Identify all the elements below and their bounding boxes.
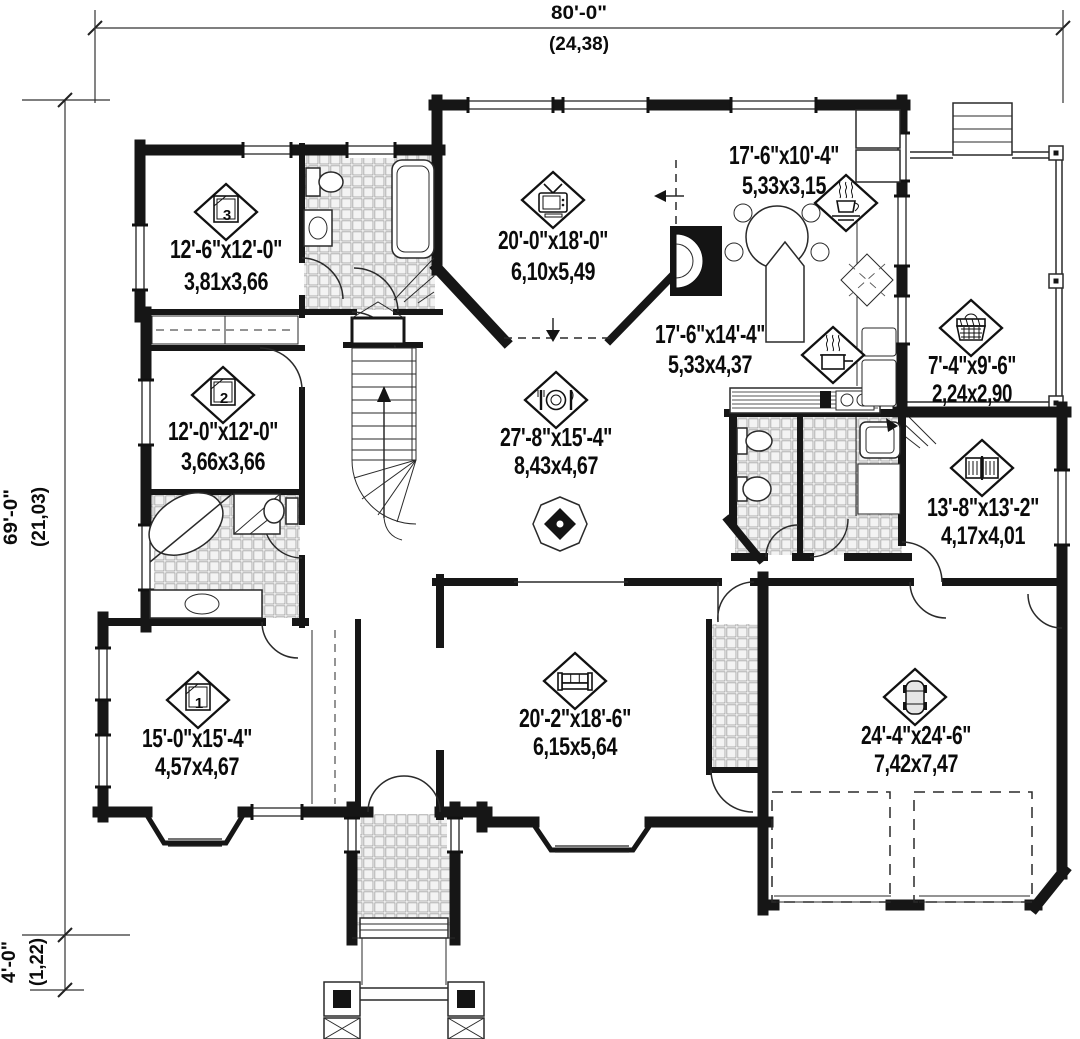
room-size-imperial: 7'-4"x9'-6" [928, 350, 1016, 380]
room-size-metric: 2,24x2,90 [932, 380, 1012, 408]
parking-stall [914, 792, 1032, 902]
room-size-imperial: 12'-0"x12'-0" [168, 416, 278, 446]
room-label-bedroom-2: 2 12'-0"x12'-0" 3,66x3,66 [168, 367, 278, 476]
room-label-family-room: 20'-0"x18'-0" 6,10x5,49 [498, 172, 608, 286]
portico-pillar [448, 982, 484, 1039]
window [894, 196, 910, 266]
room-size-imperial: 20'-0"x18'-0" [498, 225, 608, 255]
room-size-imperial: 13'-8"x13'-2" [927, 492, 1039, 522]
dining-fixture [533, 497, 587, 551]
window [132, 225, 148, 290]
dim-porch-imperial: 4'-0" [0, 941, 20, 983]
dim-width-imperial: 80'-0" [551, 3, 607, 24]
room-size-imperial: 24'-4"x24'-6" [861, 720, 971, 750]
cabinet [858, 464, 900, 514]
sofa-icon [558, 673, 592, 690]
appliance [862, 360, 896, 406]
floor-plan-drawing: 80'-0" (24,38) 69'-0" (21,03) 4'-0" (1,2… [0, 0, 1080, 1039]
corner-cabinet [841, 254, 893, 306]
room-label-bedroom-3: 3 12'-6"x12'-0" 3,81x3,66 [170, 184, 282, 296]
room-size-metric: 3,81x3,66 [184, 268, 268, 296]
room-size-imperial: 27'-8"x15'-4" [500, 422, 612, 452]
car-icon [903, 681, 927, 714]
fireplace [670, 226, 722, 296]
dishwasher [820, 391, 831, 408]
window [344, 818, 360, 852]
room-size-imperial: 17'-6"x10'-4" [729, 140, 839, 170]
window [731, 97, 816, 113]
room-size-imperial: 12'-6"x12'-0" [170, 234, 282, 264]
deck-post [1049, 274, 1063, 288]
window [563, 97, 648, 113]
floor-plan-page: 80'-0" (24,38) 69'-0" (21,03) 4'-0" (1,2… [0, 0, 1080, 1039]
room-size-metric: 8,43x4,67 [514, 452, 598, 480]
vanity-sink [150, 590, 262, 618]
sink [304, 210, 332, 246]
wall-oven [856, 150, 900, 182]
room-size-imperial: 15'-0"x15'-4" [142, 723, 252, 753]
bedroom-number: 3 [223, 207, 231, 224]
window [468, 97, 553, 113]
bedroom-number: 2 [220, 390, 228, 407]
room-size-metric: 3,66x3,66 [181, 448, 265, 476]
room-size-metric: 6,10x5,49 [511, 258, 595, 286]
parking-stall [772, 792, 890, 902]
room-size-metric: 4,57x4,67 [155, 753, 239, 781]
room-label-garage: 24'-4"x24'-6" 7,42x7,47 [861, 669, 971, 778]
appliance [862, 328, 896, 356]
room-size-metric: 7,42x7,47 [874, 750, 958, 778]
room-size-metric: 5,33x3,15 [742, 172, 826, 200]
room-size-metric: 5,33x4,37 [668, 351, 752, 379]
room-label-kitchen: 17'-6"x14'-4" 5,33x4,37 [655, 319, 864, 383]
dim-height-imperial: 69'-0" [1, 489, 22, 545]
dim-width-metric: (24,38) [549, 34, 609, 55]
window [252, 804, 302, 820]
mudroom-laundry [856, 417, 900, 516]
room-size-metric: 6,15x5,64 [533, 733, 617, 761]
room-size-imperial: 20'-2"x18'-6" [519, 703, 631, 733]
window [347, 142, 395, 158]
portico-pillar [324, 982, 360, 1039]
room-size-metric: 4,17x4,01 [941, 522, 1025, 550]
window [243, 142, 291, 158]
window [447, 818, 463, 852]
window [95, 735, 111, 787]
bathtub [392, 160, 434, 258]
garage-features [772, 792, 1032, 902]
window [95, 648, 111, 700]
room-label-master-bedroom: 1 15'-0"x15'-4" 4,57x4,67 [142, 672, 252, 781]
room-label-dining-room: 27'-8"x15'-4" 8,43x4,67 [500, 372, 612, 480]
room-label-study: 13'-8"x13'-2" 4,17x4,01 [927, 440, 1039, 550]
bedroom-number: 1 [195, 695, 203, 712]
opening-arrow [654, 190, 684, 202]
room-size-imperial: 17'-6"x14'-4" [655, 319, 765, 349]
deck-post [1049, 146, 1063, 160]
staircase [352, 302, 416, 540]
pedestal-sink [737, 477, 771, 501]
room-label-living-room: 20'-2"x18'-6" 6,15x5,64 [519, 653, 631, 761]
fridge [856, 110, 900, 148]
dim-height-metric: (21,03) [29, 487, 50, 547]
window [138, 380, 154, 445]
room-label-laundry-porch: 7'-4"x9'-6" 2,24x2,90 [928, 300, 1016, 408]
window [1054, 470, 1070, 545]
toilet [264, 498, 298, 524]
dim-porch-metric: (1,22) [27, 938, 48, 986]
steps [360, 918, 448, 938]
open-book-icon [966, 456, 998, 480]
